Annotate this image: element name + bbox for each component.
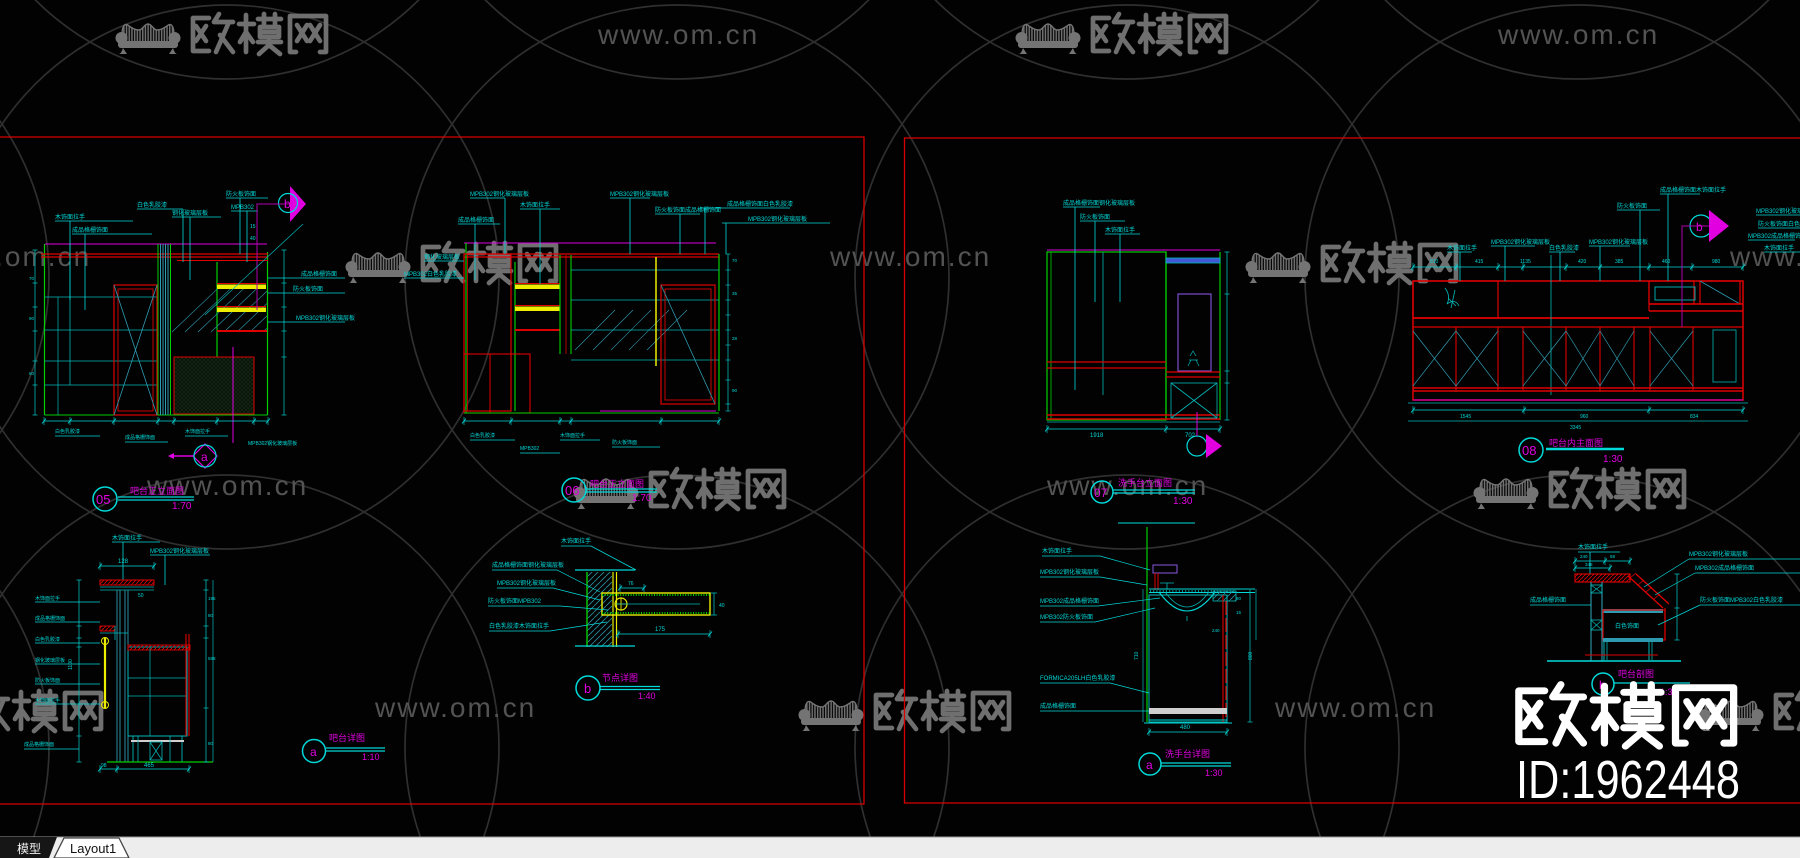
svg-text:木饰面拉手: 木饰面拉手	[35, 697, 60, 704]
svg-text:木饰面拉手: 木饰面拉手	[560, 432, 585, 439]
svg-text:白色乳胶漆: 白色乳胶漆	[137, 201, 167, 209]
svg-text:80: 80	[1236, 596, 1242, 601]
svg-text:Layout1: Layout1	[70, 841, 116, 856]
svg-text:成品格栅饰面: 成品格栅饰面	[24, 741, 54, 748]
svg-text:钢化玻璃层板: 钢化玻璃层板	[172, 209, 208, 217]
svg-text:128: 128	[118, 559, 129, 565]
svg-text:1:30: 1:30	[1173, 496, 1193, 507]
svg-text:06: 06	[565, 483, 579, 498]
svg-text:MPB302钢化玻璃层板: MPB302钢化玻璃层板	[296, 314, 355, 322]
svg-text:白色乳胶漆: 白色乳胶漆	[35, 636, 60, 643]
svg-text:MPB302钢化玻璃层板: MPB302钢化玻璃层板	[470, 190, 529, 198]
svg-text:480: 480	[1180, 725, 1191, 731]
svg-text:吧台内主面图: 吧台内主面图	[1549, 437, 1603, 448]
svg-text:成品格栅饰面钢化玻璃层板: 成品格栅饰面钢化玻璃层板	[1063, 199, 1135, 207]
svg-text:a: a	[201, 450, 208, 464]
svg-text:MPB302钢化玻璃层板: MPB302钢化玻璃层板	[497, 579, 556, 587]
svg-text:防火板饰面成品格栅饰面: 防火板饰面成品格栅饰面	[655, 206, 721, 214]
svg-text:吧台正立面图: 吧台正立面图	[130, 485, 184, 496]
svg-text:白色乳胶漆: 白色乳胶漆	[1549, 244, 1579, 252]
svg-text:木饰面拉手: 木饰面拉手	[1578, 543, 1608, 551]
svg-text:MPB302: MPB302	[520, 446, 539, 452]
svg-text:MPB302钢化玻璃层板: MPB302钢化玻璃层板	[1689, 550, 1748, 558]
svg-text:195: 195	[208, 596, 216, 601]
svg-text:1:30: 1:30	[1603, 454, 1623, 465]
svg-text:a: a	[1146, 758, 1153, 772]
svg-text:b: b	[584, 681, 591, 696]
svg-text:980: 980	[1712, 259, 1721, 265]
svg-text:35: 35	[732, 291, 738, 296]
svg-text:70: 70	[732, 258, 738, 263]
svg-text:58: 58	[1610, 554, 1616, 559]
svg-text:www.om.cn: www.om.cn	[829, 241, 991, 272]
svg-text:1545: 1545	[1460, 414, 1471, 420]
svg-text:385: 385	[1615, 259, 1624, 265]
svg-text:MPB302钢化玻璃层板: MPB302钢化玻璃层板	[150, 547, 209, 555]
svg-text:防火板饰面: 防火板饰面	[293, 285, 323, 293]
svg-text:木饰面拉手: 木饰面拉手	[55, 213, 85, 221]
svg-text:MPB302钢化玻璃层板: MPB302钢化玻璃层板	[1040, 568, 1099, 576]
svg-text:白色乳胶漆: 白色乳胶漆	[470, 432, 495, 439]
svg-text:吧台剖图: 吧台剖图	[1618, 668, 1654, 679]
svg-text:80: 80	[208, 741, 214, 746]
svg-text:ID:1962448: ID:1962448	[1516, 750, 1740, 810]
svg-text:防火板饰面: 防火板饰面	[35, 677, 60, 684]
svg-text:MPB302成品格栅饰面: MPB302成品格栅饰面	[1695, 564, 1754, 572]
svg-text:28: 28	[732, 336, 738, 341]
svg-text:成品格栅饰面: 成品格栅饰面	[125, 434, 155, 441]
svg-text:1100: 1100	[68, 659, 74, 670]
svg-text:成品格栅饰面: 成品格栅饰面	[458, 216, 494, 224]
svg-text:成品格栅饰面: 成品格栅饰面	[1530, 596, 1566, 604]
svg-text:木饰面拉手: 木饰面拉手	[112, 534, 142, 542]
svg-text:1:70: 1:70	[632, 493, 652, 504]
svg-text:76: 76	[628, 581, 634, 587]
svg-text:460: 460	[1662, 259, 1671, 265]
svg-text:www.om.cn: www.om.cn	[1497, 19, 1659, 50]
svg-text:防火板饰面MPB302: 防火板饰面MPB302	[488, 597, 542, 605]
svg-text:MPB302钢化玻璃层板: MPB302钢化玻璃层板	[1756, 207, 1800, 215]
svg-text:木饰面拉手: 木饰面拉手	[520, 201, 550, 209]
svg-text:05: 05	[96, 492, 110, 507]
svg-text:www.om.cn: www.om.cn	[1274, 692, 1436, 723]
svg-text:MPB302钢化玻璃层板: MPB302钢化玻璃层板	[1491, 238, 1550, 246]
svg-text:节点详图: 节点详图	[602, 672, 638, 683]
svg-text:成品格栅饰面: 成品格栅饰面	[301, 270, 337, 278]
svg-text:MPB302成品格栅饰面: MPB302成品格栅饰面	[1748, 232, 1800, 240]
svg-text:防火板饰面: 防火板饰面	[612, 439, 637, 446]
svg-text:175: 175	[655, 627, 666, 633]
svg-text:成品格栅饰面白色乳胶漆: 成品格栅饰面白色乳胶漆	[727, 200, 793, 208]
svg-text:465: 465	[144, 763, 155, 769]
svg-text:白色乳胶漆: 白色乳胶漆	[55, 428, 80, 435]
svg-text:成品格栅饰面: 成品格栅饰面	[1040, 702, 1076, 710]
svg-text:800: 800	[1248, 651, 1254, 660]
svg-text:MPB302钢化玻璃层板: MPB302钢化玻璃层板	[748, 215, 807, 223]
svg-text:木饰面拉手: 木饰面拉手	[1042, 547, 1072, 555]
svg-text:www.om.cn: www.om.cn	[374, 692, 536, 723]
svg-text:50: 50	[138, 593, 144, 599]
svg-text:240: 240	[1580, 554, 1588, 559]
svg-text:40: 40	[719, 603, 725, 609]
svg-text:1135: 1135	[1520, 259, 1531, 265]
svg-text:b: b	[1696, 220, 1703, 234]
svg-text:240: 240	[1212, 628, 1220, 633]
svg-text:钢化玻璃层板: 钢化玻璃层板	[424, 253, 460, 261]
svg-text:MPB302钢化玻璃层板: MPB302钢化玻璃层板	[610, 190, 669, 198]
svg-text:98: 98	[101, 763, 107, 769]
svg-text:08: 08	[1522, 443, 1536, 458]
svg-text:木饰面拉手: 木饰面拉手	[35, 595, 60, 602]
svg-text:木饰面拉手: 木饰面拉手	[561, 537, 591, 545]
svg-text:415: 415	[1475, 259, 1484, 265]
svg-text:420: 420	[1578, 259, 1587, 265]
svg-text:木饰面拉手: 木饰面拉手	[185, 428, 210, 435]
svg-text:40: 40	[250, 236, 256, 242]
svg-text:a: a	[310, 745, 317, 759]
svg-text:80: 80	[208, 613, 214, 618]
svg-text:成品格栅饰面: 成品格栅饰面	[35, 615, 65, 622]
svg-text:木饰面拉手: 木饰面拉手	[1447, 244, 1477, 252]
svg-text:MPB302成品格栅饰面: MPB302成品格栅饰面	[1040, 597, 1099, 605]
svg-text:钢化玻璃层板: 钢化玻璃层板	[35, 657, 65, 664]
svg-text:木饰面拉手: 木饰面拉手	[1105, 226, 1135, 234]
svg-text:1:10: 1:10	[362, 752, 380, 762]
svg-text:洗手台详图: 洗手台详图	[1165, 748, 1210, 759]
svg-text:1:70: 1:70	[172, 501, 192, 512]
svg-text:1918: 1918	[1090, 433, 1104, 439]
svg-text:588: 588	[208, 656, 216, 661]
svg-text:成品格栅饰面木饰面拉手: 成品格栅饰面木饰面拉手	[1660, 186, 1726, 194]
svg-text:防火板饰面MPB302白色乳胶漆: 防火板饰面MPB302白色乳胶漆	[1700, 596, 1783, 604]
svg-text:70: 70	[29, 276, 35, 281]
svg-text:防火板饰面: 防火板饰面	[226, 190, 256, 198]
svg-text:MPB302: MPB302	[231, 205, 255, 211]
svg-text:15: 15	[250, 224, 256, 230]
svg-text:710: 710	[1134, 651, 1140, 660]
svg-text:白色饰面: 白色饰面	[1615, 622, 1639, 630]
svg-text:防火板饰面: 防火板饰面	[1617, 202, 1647, 210]
svg-text:吧台正立面图: 吧台正立面图	[590, 478, 644, 489]
svg-text:348: 348	[1585, 562, 1593, 567]
svg-text:吧台详图: 吧台详图	[329, 732, 365, 743]
svg-text:1:30: 1:30	[1205, 768, 1223, 778]
svg-text:模型: 模型	[17, 842, 41, 856]
svg-text:成品格栅饰面钢化玻璃层板: 成品格栅饰面钢化玻璃层板	[492, 561, 564, 569]
svg-text:960: 960	[1580, 414, 1589, 420]
svg-text:90: 90	[29, 316, 35, 321]
svg-text:防火板饰面: 防火板饰面	[1080, 213, 1110, 221]
svg-text:60: 60	[29, 371, 35, 376]
svg-text:成品格栅饰面: 成品格栅饰面	[72, 226, 108, 234]
svg-text:MPB302防火板饰面: MPB302防火板饰面	[1040, 613, 1093, 621]
svg-text:www.om.cn: www.om.cn	[597, 19, 759, 50]
svg-text:1:40: 1:40	[638, 691, 656, 701]
svg-text:MPB302白色乳胶漆: MPB302白色乳胶漆	[404, 270, 457, 278]
svg-text:MPB302钢化玻璃层板: MPB302钢化玻璃层板	[1589, 238, 1648, 246]
svg-text:洗手台立面图: 洗手台立面图	[1118, 477, 1172, 488]
svg-text:FORMICA205LH白色乳胶漆: FORMICA205LH白色乳胶漆	[1040, 674, 1115, 682]
svg-text:15: 15	[1236, 610, 1242, 615]
svg-text:810: 810	[1430, 259, 1439, 265]
svg-text:防火板饰面白色乳胶漆: 防火板饰面白色乳胶漆	[1758, 220, 1800, 228]
svg-text:3345: 3345	[1570, 425, 1581, 431]
svg-text:90: 90	[732, 388, 738, 393]
svg-text:834: 834	[1690, 414, 1699, 420]
svg-text:木饰面拉手: 木饰面拉手	[1764, 244, 1794, 252]
svg-text:白色乳胶漆木饰面拉手: 白色乳胶漆木饰面拉手	[489, 622, 549, 630]
svg-text:MPB302钢化玻璃层板: MPB302钢化玻璃层板	[248, 440, 297, 447]
svg-text:07: 07	[1094, 486, 1108, 500]
